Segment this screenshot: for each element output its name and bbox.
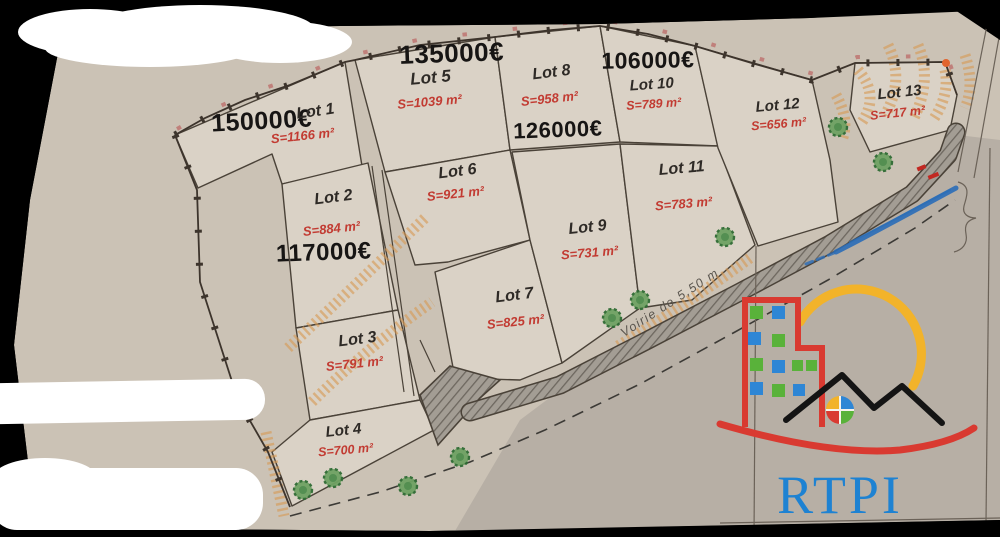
- plan-svg: Voirie de 5,50 m: [0, 0, 1000, 537]
- rtpi-wordmark: RTPI: [777, 465, 903, 525]
- scanned-subdivision-plan: Voirie de 5,50 m: [0, 0, 1000, 537]
- lot-8-price: 126000€: [513, 115, 603, 143]
- logo-globe-icon: [826, 396, 854, 424]
- survey-point-dot: [942, 59, 950, 67]
- lot-10-price: 106000€: [601, 46, 694, 74]
- lot-10-name: Lot 10: [629, 74, 675, 94]
- lot-2-price: 117000€: [275, 237, 371, 267]
- lot-5-price: 135000€: [399, 36, 505, 70]
- redaction-blob-left-1: [0, 378, 265, 424]
- redaction-blob-left-2: [0, 458, 263, 530]
- lot-5-name: Lot 5: [409, 66, 452, 89]
